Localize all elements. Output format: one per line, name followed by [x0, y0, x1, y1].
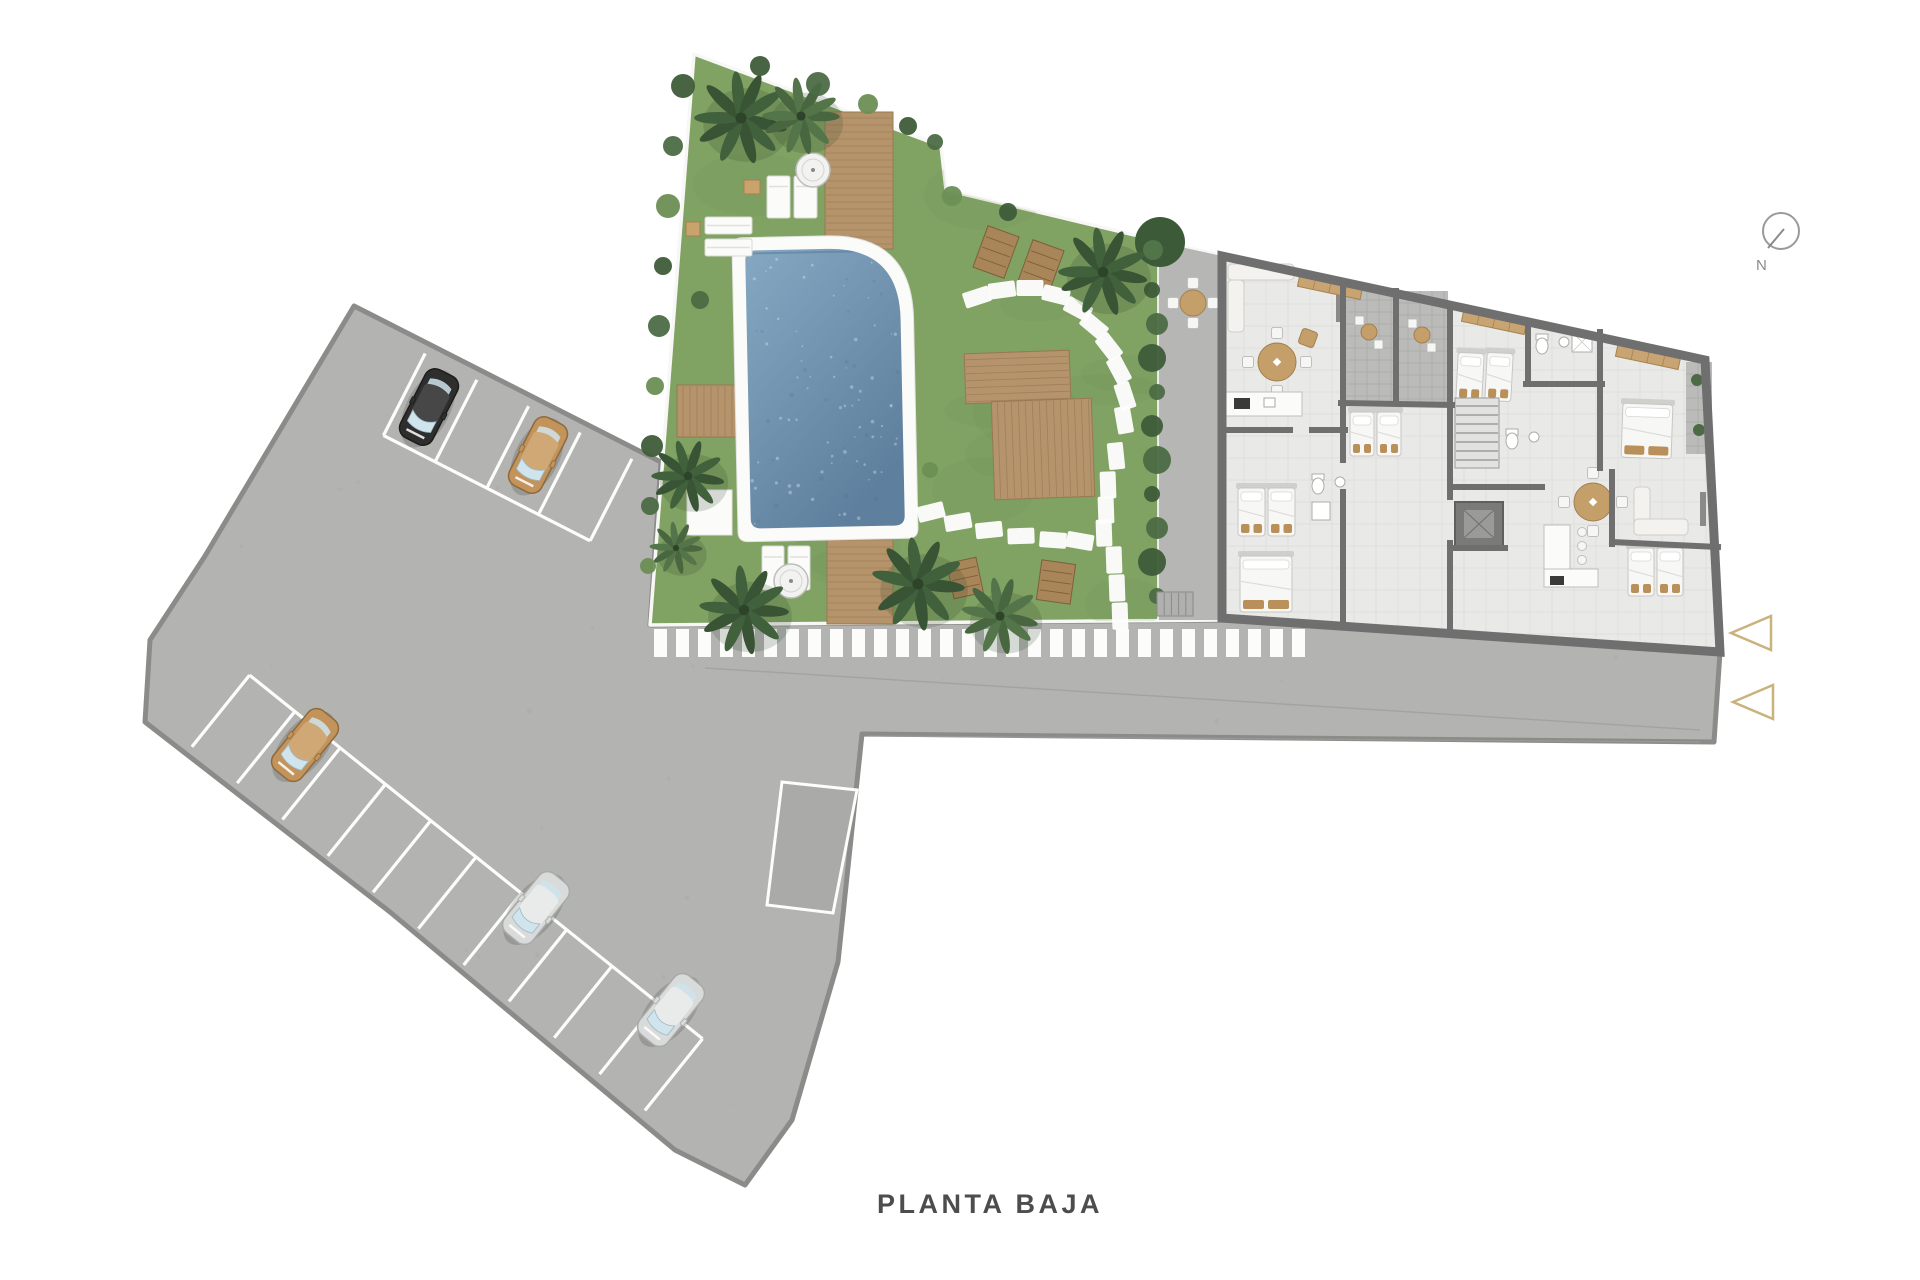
shape	[386, 1131, 389, 1134]
shape	[1116, 629, 1129, 657]
shape	[1050, 629, 1063, 657]
bush-icon	[942, 186, 962, 206]
shape	[967, 95, 1011, 153]
bush-icon	[1149, 384, 1165, 400]
shape	[634, 1184, 639, 1189]
shape	[1364, 444, 1371, 453]
shape	[165, 523, 167, 525]
bush-icon	[641, 497, 659, 515]
shape	[1138, 629, 1151, 657]
shape	[1280, 679, 1282, 681]
bush-icon	[656, 194, 680, 218]
plant-icon	[1691, 374, 1703, 386]
sun-lounger	[705, 217, 752, 234]
terrace	[1343, 288, 1395, 401]
bush-icon	[648, 315, 670, 337]
shape	[1391, 444, 1398, 453]
sun-lounger	[767, 176, 790, 218]
shape	[1168, 298, 1179, 309]
shape	[1494, 870, 1498, 874]
bush-icon	[1144, 486, 1160, 502]
shape	[698, 629, 711, 657]
shape	[735, 112, 746, 123]
shape	[1188, 318, 1199, 329]
shape	[1459, 388, 1467, 397]
apartment-building	[1220, 250, 1722, 660]
shape	[230, 990, 234, 994]
shape	[962, 804, 965, 807]
shape	[1550, 576, 1564, 585]
shape	[1241, 524, 1250, 533]
swimming-pool	[732, 234, 918, 542]
elevator	[1455, 502, 1503, 546]
floor-plan-page: N PLANTA BAJA	[0, 0, 1920, 1280]
shape	[506, 1024, 511, 1029]
shape	[1631, 552, 1651, 561]
shape	[151, 854, 153, 856]
shape	[1107, 75, 1209, 122]
shape	[1098, 267, 1109, 278]
shape	[535, 953, 540, 958]
wood-bench	[1036, 560, 1075, 604]
plant-icon	[1693, 424, 1705, 436]
shape	[1271, 492, 1292, 501]
shape	[920, 809, 924, 813]
shape	[1398, 894, 1402, 898]
shape	[149, 1127, 152, 1130]
bush-icon	[1138, 344, 1166, 372]
shape	[1532, 801, 1535, 804]
shape	[1614, 655, 1618, 659]
shape	[1341, 403, 1452, 405]
shape	[520, 1093, 522, 1095]
bush-icon	[691, 291, 709, 309]
shape	[460, 880, 462, 882]
stepping-stone	[1039, 531, 1067, 549]
shape	[796, 111, 805, 120]
shape	[1355, 316, 1364, 325]
shape	[1228, 280, 1244, 332]
shape	[1017, 954, 1022, 959]
shape	[1182, 629, 1195, 657]
stepping-stone	[1109, 574, 1126, 602]
shape	[808, 629, 821, 657]
shape	[321, 1126, 323, 1128]
shape	[1488, 388, 1496, 397]
shape	[1414, 327, 1430, 343]
shape	[943, 678, 945, 680]
bush-icon	[750, 56, 770, 76]
shape	[1634, 519, 1688, 535]
shape	[1631, 584, 1639, 593]
bed	[1619, 398, 1675, 459]
bed	[1348, 407, 1376, 456]
shape	[240, 544, 244, 548]
shape	[1637, 987, 1640, 990]
shape	[1374, 340, 1383, 349]
toilet-icon	[1506, 433, 1518, 449]
shape	[912, 578, 923, 589]
toilet-icon	[1536, 338, 1548, 354]
shape	[1500, 389, 1508, 398]
shape	[1490, 357, 1510, 367]
shape	[1134, 1083, 1139, 1088]
bed	[1266, 483, 1297, 536]
shape	[829, 1067, 834, 1072]
shape	[189, 567, 193, 571]
shape	[477, 955, 481, 959]
shape	[732, 1104, 734, 1106]
entrance-arrows	[1731, 616, 1773, 719]
compass-circle	[1763, 213, 1799, 249]
shape	[995, 611, 1004, 620]
shape	[995, 914, 999, 918]
shape	[527, 708, 532, 713]
bush-icon	[646, 377, 664, 395]
shape	[1576, 1117, 1580, 1121]
shape	[1093, 1150, 1095, 1152]
shape	[1214, 719, 1219, 724]
shape	[1248, 629, 1261, 657]
shape	[1038, 92, 1160, 161]
entrance-arrow-icon-1	[1731, 616, 1771, 650]
shape	[1525, 1073, 1530, 1078]
shape	[1380, 416, 1398, 425]
tv-icon	[1700, 492, 1706, 526]
stepping-stone	[1096, 519, 1113, 547]
bush-icon	[999, 203, 1017, 221]
shape	[739, 605, 750, 616]
shape	[676, 629, 689, 657]
shape	[1157, 592, 1193, 616]
shape	[1644, 321, 1648, 325]
wood-deck	[991, 398, 1094, 499]
shape	[1353, 416, 1371, 425]
tree-icon	[1143, 240, 1163, 260]
shape	[811, 168, 815, 172]
shape	[356, 480, 360, 484]
shape	[1031, 910, 1034, 913]
shape	[1118, 960, 1121, 963]
shape	[940, 629, 953, 657]
shape	[1270, 629, 1283, 657]
shape	[1588, 468, 1599, 479]
side-table	[744, 180, 760, 194]
stepping-stone	[1007, 528, 1035, 545]
side-table	[686, 222, 700, 236]
shape	[1263, 748, 1265, 750]
shape	[684, 472, 693, 481]
bed	[1238, 551, 1294, 612]
pool-group	[732, 234, 918, 542]
shape	[1284, 524, 1293, 533]
shape	[924, 160, 1045, 230]
bed	[1655, 543, 1685, 596]
bush-icon	[927, 134, 943, 150]
wood-deck	[964, 350, 1071, 404]
shape	[1188, 278, 1199, 289]
compass: N	[1756, 213, 1799, 274]
shape	[786, 629, 799, 657]
shape	[1624, 445, 1644, 455]
shape	[1353, 444, 1360, 453]
bush-icon	[1138, 548, 1166, 576]
shape	[1253, 927, 1255, 929]
shape	[640, 303, 642, 305]
shape	[1660, 552, 1680, 561]
shape	[924, 799, 928, 803]
shape	[1528, 1099, 1533, 1104]
shape	[1471, 389, 1479, 398]
shape	[1254, 524, 1263, 533]
shape	[1617, 497, 1628, 508]
stool	[1578, 542, 1587, 551]
shape	[1461, 357, 1481, 367]
pool-water	[745, 247, 905, 528]
shape	[673, 545, 679, 551]
stepping-stone	[1100, 471, 1117, 499]
shape	[1180, 290, 1206, 316]
shape	[684, 896, 689, 901]
bush-icon	[1146, 517, 1168, 539]
bush-icon	[663, 136, 683, 156]
bush-icon	[641, 435, 663, 457]
shape	[1094, 629, 1107, 657]
shape	[1268, 600, 1289, 609]
bush-icon	[1143, 446, 1171, 474]
shape	[496, 486, 500, 490]
shape	[1427, 343, 1436, 352]
shape	[1292, 629, 1305, 657]
shape	[1243, 600, 1264, 609]
shape	[1143, 1129, 1145, 1131]
sink-icon	[1559, 337, 1569, 347]
shape	[207, 421, 209, 423]
bed	[1454, 347, 1487, 401]
site-plan: N PLANTA BAJA	[0, 0, 1920, 1280]
shape	[874, 629, 887, 657]
shape	[654, 629, 667, 657]
terrace	[1396, 291, 1448, 404]
shape	[953, 752, 957, 756]
plan-title: PLANTA BAJA	[877, 1189, 1103, 1219]
bed	[1626, 543, 1656, 596]
shape	[1208, 298, 1219, 309]
sink-icon	[1529, 432, 1539, 442]
shape	[1408, 319, 1417, 328]
shape	[1234, 398, 1250, 409]
bush-icon	[922, 462, 938, 478]
bed	[1375, 407, 1403, 456]
shape	[1660, 584, 1668, 593]
shape	[1380, 444, 1387, 453]
shape	[512, 1114, 515, 1117]
shape	[1271, 524, 1280, 533]
shape	[830, 629, 843, 657]
shape	[1048, 1118, 1053, 1123]
shape	[270, 1195, 272, 1197]
stool	[1578, 528, 1587, 537]
bed	[1236, 483, 1267, 536]
stepping-stone	[1107, 442, 1126, 471]
kitchen-counter	[1224, 392, 1302, 416]
shape	[465, 949, 468, 952]
shape	[1241, 492, 1262, 501]
stepping-stone	[975, 521, 1004, 540]
bush-icon	[640, 558, 656, 574]
shape	[1160, 629, 1173, 657]
shape	[1243, 560, 1289, 569]
shape	[1085, 949, 1090, 954]
bush-icon	[899, 117, 917, 135]
patio-steps	[1157, 592, 1193, 616]
shape	[1588, 526, 1599, 537]
sun-lounger	[705, 239, 752, 256]
shape	[1361, 324, 1377, 340]
shape	[1643, 584, 1651, 593]
shape	[767, 176, 790, 218]
shape	[1559, 497, 1570, 508]
shape	[318, 376, 320, 378]
shower-icon	[1312, 502, 1330, 520]
shape	[265, 993, 270, 998]
bush-icon	[1141, 415, 1163, 437]
bush-icon	[858, 94, 878, 114]
shape	[1565, 984, 1568, 987]
bed	[1483, 347, 1516, 401]
shape	[852, 629, 865, 657]
bush-icon	[806, 72, 830, 96]
compass-needle-icon	[1768, 229, 1784, 248]
compass-label: N	[1756, 257, 1767, 274]
stepping-stone	[1112, 602, 1129, 630]
staircase	[1455, 398, 1499, 468]
shape	[1226, 629, 1239, 657]
shape	[1624, 733, 1626, 735]
parasol-icon	[796, 153, 830, 187]
shape	[667, 777, 671, 781]
shape	[1648, 446, 1668, 456]
shape	[789, 579, 793, 583]
shape	[1204, 629, 1217, 657]
shape	[1157, 799, 1160, 802]
shape	[1589, 998, 1593, 1002]
shape	[662, 975, 666, 979]
shape	[540, 827, 543, 830]
shape	[918, 629, 931, 657]
shape	[1243, 357, 1254, 368]
shape	[1588, 918, 1592, 922]
shape	[1222, 1103, 1224, 1105]
shape	[1672, 584, 1680, 593]
shape	[1264, 398, 1275, 407]
shape	[1072, 629, 1085, 657]
stepping-stone	[1106, 546, 1123, 574]
bush-icon	[654, 257, 672, 275]
shape	[768, 674, 770, 676]
shape	[1301, 357, 1312, 368]
shape	[1272, 328, 1283, 339]
toilet-icon	[1312, 478, 1324, 494]
shape	[591, 626, 594, 629]
sink-icon	[1335, 477, 1345, 487]
stepping-stone	[1017, 280, 1044, 296]
shape	[691, 665, 694, 668]
bush-icon	[1146, 313, 1168, 335]
shape	[339, 487, 343, 491]
shape	[896, 629, 909, 657]
bush-icon	[671, 74, 695, 98]
shape	[270, 665, 272, 667]
entrance-arrow-icon-2	[1733, 685, 1773, 719]
shape	[1626, 407, 1670, 418]
stool	[1578, 556, 1587, 565]
